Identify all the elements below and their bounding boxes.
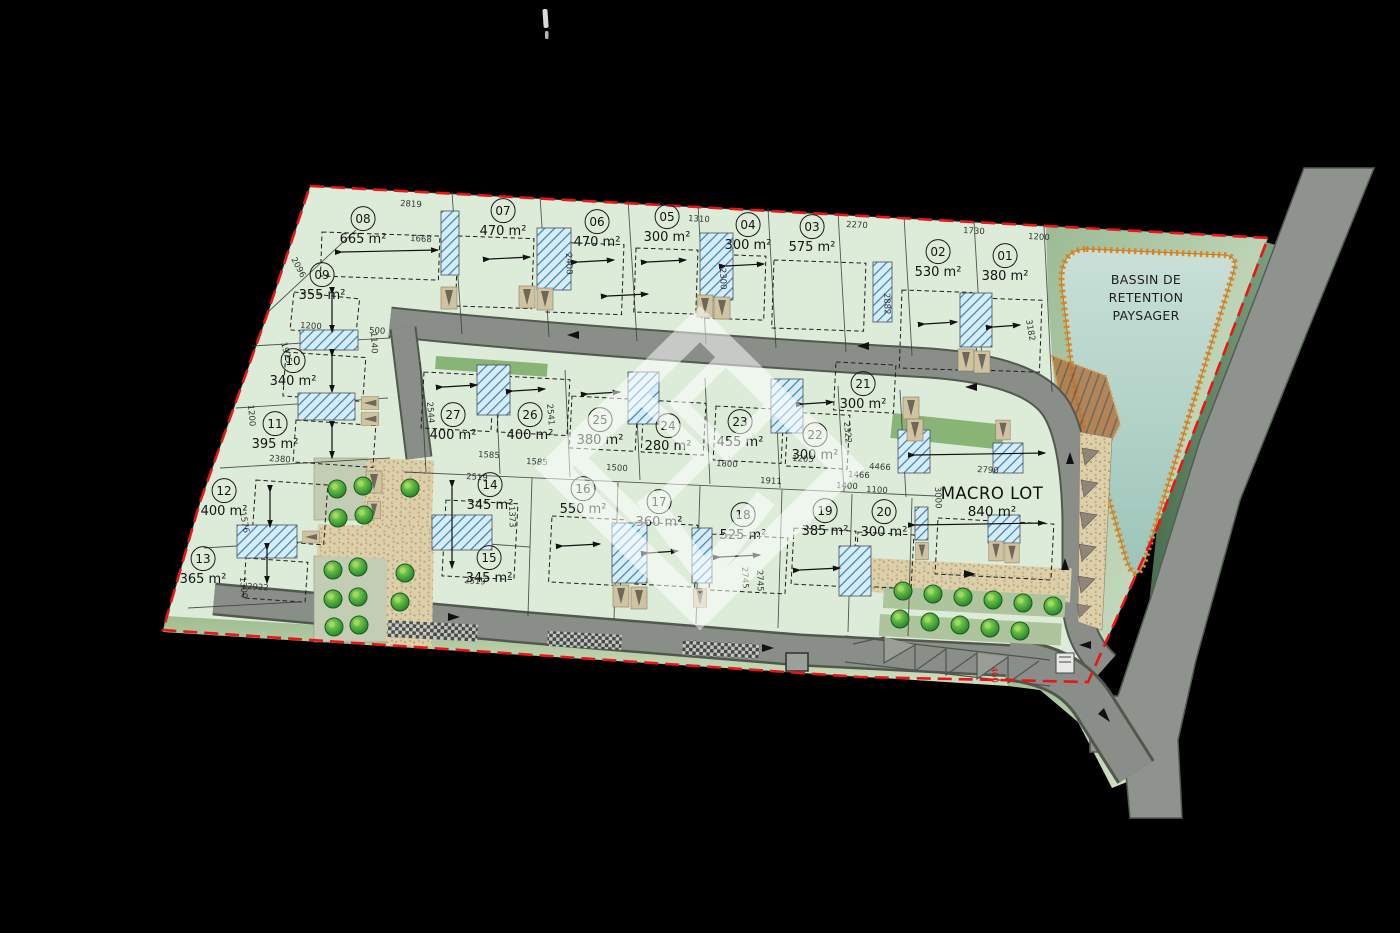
svg-text:1800: 1800 (716, 459, 738, 470)
svg-text:4466: 4466 (869, 462, 891, 473)
svg-text:2745: 2745 (739, 567, 750, 589)
svg-text:2745: 2745 (754, 570, 765, 592)
svg-text:1585: 1585 (478, 450, 500, 461)
svg-text:2270: 2270 (846, 220, 868, 231)
site-plan: 2819 1668 2096 1975 1140 1310 2270 1730 … (0, 0, 1400, 933)
svg-text:2541: 2541 (544, 403, 556, 425)
svg-text:1500: 1500 (606, 463, 628, 474)
svg-text:2790: 2790 (977, 465, 999, 476)
svg-text:2300: 2300 (717, 268, 728, 290)
svg-text:1200: 1200 (300, 321, 322, 332)
svg-text:1200: 1200 (1028, 232, 1050, 243)
svg-text:1100: 1100 (866, 485, 888, 496)
svg-text:1200: 1200 (245, 404, 257, 426)
svg-text:1373: 1373 (506, 506, 517, 528)
svg-text:2544: 2544 (424, 401, 436, 423)
svg-text:1911: 1911 (760, 476, 782, 487)
svg-text:1310: 1310 (688, 214, 710, 225)
svg-text:1400: 1400 (836, 481, 858, 492)
svg-text:1585: 1585 (526, 457, 548, 468)
svg-text:2519: 2519 (464, 576, 486, 587)
plan-drawing: 2819 1668 2096 1975 1140 1310 2270 1730 … (0, 0, 1400, 933)
svg-text:2922: 2922 (247, 582, 269, 593)
svg-text:3000: 3000 (932, 487, 943, 509)
svg-text:1730: 1730 (963, 226, 985, 237)
svg-text:1466: 1466 (848, 470, 870, 481)
svg-text:500: 500 (369, 326, 386, 337)
svg-text:2819: 2819 (400, 199, 422, 210)
svg-text:2322: 2322 (841, 421, 853, 443)
svg-text:1205: 1205 (792, 454, 814, 465)
svg-text:2400: 2400 (563, 253, 574, 275)
svg-text:2519: 2519 (466, 472, 488, 483)
svg-text:2882: 2882 (881, 293, 892, 315)
svg-text:1668: 1668 (410, 234, 432, 245)
svg-text:2380: 2380 (269, 454, 291, 465)
